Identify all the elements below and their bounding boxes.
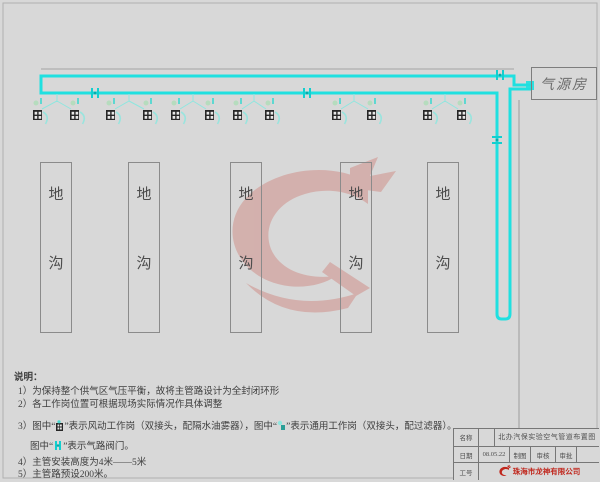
work-station-icon <box>171 98 185 124</box>
name-label-cell: 名称 <box>454 429 479 446</box>
trench-label-bottom: 沟 <box>238 252 253 273</box>
work-station-icon <box>70 98 84 124</box>
trench-label-top: 地 <box>136 183 151 204</box>
work-station-icon <box>233 98 247 124</box>
trench-column: 地 沟 <box>427 162 459 333</box>
company-name-cell: 珠海市龙神有限公司 <box>479 463 599 480</box>
note-line-5: 5）主管路预设200米。 <box>18 466 113 480</box>
trench-label-top: 地 <box>435 183 450 204</box>
work-station-icon <box>367 98 381 124</box>
name-blank-cell <box>479 429 495 446</box>
drawing-title-cell: 北办汽保实验空气管道布置图 <box>495 429 599 446</box>
title-block-row-1: 名称 北办汽保实验空气管道布置图 <box>454 429 599 447</box>
trench-column: 地 沟 <box>40 162 72 333</box>
trench-column: 地 沟 <box>128 162 160 333</box>
valve-icon <box>303 88 311 98</box>
notes-heading: 说明： <box>14 369 43 383</box>
signature-blank-cell <box>577 447 599 462</box>
trench-label-bottom: 沟 <box>136 252 151 273</box>
note-line-3b-pre: 图中“ <box>30 442 53 452</box>
air-source-room-label: 气源房 <box>540 74 588 94</box>
valve-note-icon <box>53 440 63 454</box>
valve-icon <box>496 70 504 80</box>
valve-icon <box>492 136 502 144</box>
trench-label-top: 地 <box>48 183 63 204</box>
title-block: 名称 北办汽保实验空气管道布置图 日期 08.05.22 制图 审核 审批 工号… <box>453 428 599 480</box>
trench-label-bottom: 沟 <box>348 252 363 273</box>
drawn-label-cell: 制图 <box>510 447 531 462</box>
work-station-icon <box>205 98 219 124</box>
work-station-icon <box>423 98 437 124</box>
note-line-3-post: ”表示通用工作岗（双接头，配过滤器）。 <box>286 422 456 432</box>
work-station-icon <box>143 98 157 124</box>
station-feed-lines <box>42 94 458 109</box>
job-label-cell: 工号 <box>454 463 479 480</box>
trench-column: 地 沟 <box>340 162 372 333</box>
date-value-cell: 08.05.22 <box>479 447 510 462</box>
work-station-icon <box>106 98 120 124</box>
note-line-2: 2）各工作岗位置可根据现场实际情况作具体调整 <box>18 396 222 410</box>
work-station-icon <box>332 98 346 124</box>
note-line-1: 1）为保持整个供气区气压平衡，故将主管路设计为全封闭环形 <box>18 383 279 397</box>
note-line-3b-post: ”表示气路阀门。 <box>63 442 134 452</box>
work-station-icon <box>33 98 47 124</box>
air-source-room-box: 气源房 <box>531 67 597 100</box>
note-line-3-mid: ”表示风动工作岗（双接头，配隔水油雾器），图中“ <box>64 422 277 432</box>
work-station-icon <box>265 98 279 124</box>
note-line-3-pre: 3）图中“ <box>18 422 55 432</box>
dragon-logo-icon <box>498 465 511 478</box>
trench-label-bottom: 沟 <box>48 252 63 273</box>
pipe-valves-group <box>91 70 504 144</box>
trench-label-top: 地 <box>238 183 253 204</box>
checked-label-cell: 审核 <box>531 447 556 462</box>
trench-column: 地 沟 <box>230 162 262 333</box>
note-line-3: 3）图中“”表示风动工作岗（双接头，配隔水油雾器），图中“”表示通用工作岗（双接… <box>18 418 457 434</box>
company-name-text: 珠海市龙神有限公司 <box>513 466 581 477</box>
valve-icon <box>91 88 99 98</box>
approved-label-cell: 审批 <box>556 447 577 462</box>
trench-label-top: 地 <box>348 183 363 204</box>
drawing-sheet: 气源房 地 沟 地 沟 地 沟 地 沟 地 沟 说明： 1）为保持整个供气区气压… <box>0 0 600 482</box>
date-label-cell: 日期 <box>454 447 479 462</box>
note-line-3b: 图中“”表示气路阀门。 <box>30 438 134 454</box>
work-station-icon <box>457 98 471 124</box>
trench-label-bottom: 沟 <box>435 252 450 273</box>
title-block-row-3: 工号 珠海市龙神有限公司 <box>454 463 599 480</box>
title-block-row-2: 日期 08.05.22 制图 审核 审批 <box>454 447 599 463</box>
general-station-icon <box>277 420 286 434</box>
